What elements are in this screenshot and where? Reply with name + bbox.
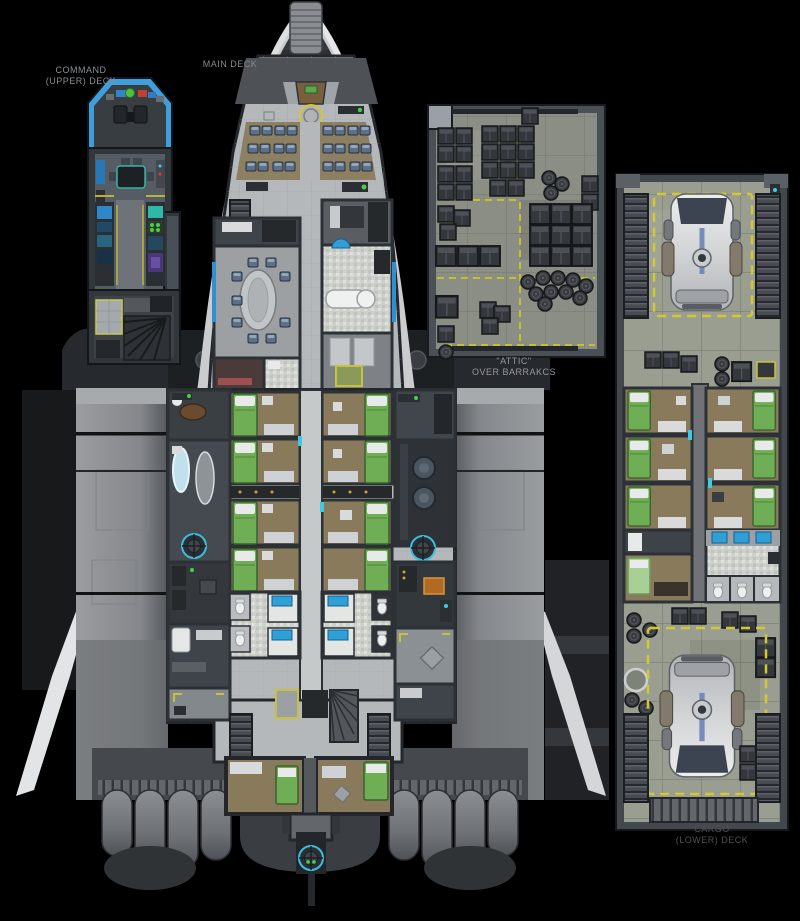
bottom-cabins — [226, 758, 392, 814]
central-corridor — [300, 390, 322, 700]
engine-pods-right — [389, 790, 518, 890]
label-line: COMMAND — [29, 65, 133, 76]
cargo-vehicle-top — [662, 194, 742, 310]
label-line: OVER BARRAKCS — [452, 367, 576, 378]
right-nacelle — [452, 388, 544, 800]
right-airlock-hatch — [411, 536, 435, 560]
main-deck-label: MAIN DECK — [188, 59, 272, 70]
cargo-stairs-top-right — [756, 194, 780, 318]
rear-loading-ramp — [650, 798, 758, 822]
upper-bathroom-suite — [322, 200, 392, 390]
cargo-stairs-bottom-left — [624, 714, 648, 802]
cargo-vehicle-bottom — [660, 655, 744, 777]
engine-pods-left — [102, 790, 231, 890]
cargo-bathroom — [706, 530, 780, 602]
label-line: CARGO — [650, 824, 774, 835]
command-corridor — [95, 200, 165, 290]
command-deck-label: COMMAND (UPPER) DECK — [29, 65, 133, 87]
passenger-seating — [236, 122, 376, 180]
attic-label: "ATTIC" OVER BARRAKCS — [452, 356, 576, 378]
label-line: MAIN DECK — [188, 59, 272, 70]
cargo-deck-label: CARGO (LOWER) DECK — [650, 824, 774, 846]
left-airlock-hatch — [182, 534, 206, 558]
attic-plan — [428, 105, 605, 359]
left-wing-rooms — [168, 390, 230, 720]
label-line: "ATTIC" — [452, 356, 576, 367]
rear-airlock-hatch — [299, 846, 323, 870]
deckplan-canvas: COMMAND (UPPER) DECK MAIN DECK "ATTIC" O… — [0, 0, 800, 921]
cargo-stairs-bottom-right — [756, 714, 780, 802]
galley — [214, 218, 300, 358]
deckplan-art — [0, 0, 800, 921]
label-line: (UPPER) DECK — [29, 76, 133, 87]
cargo-stairs-top-left — [624, 194, 648, 318]
command-deck-plan — [88, 78, 180, 364]
cargo-deck-plan — [616, 174, 788, 830]
label-line: (LOWER) DECK — [650, 835, 774, 846]
left-nacelle — [76, 388, 168, 800]
command-staircase — [124, 316, 170, 360]
